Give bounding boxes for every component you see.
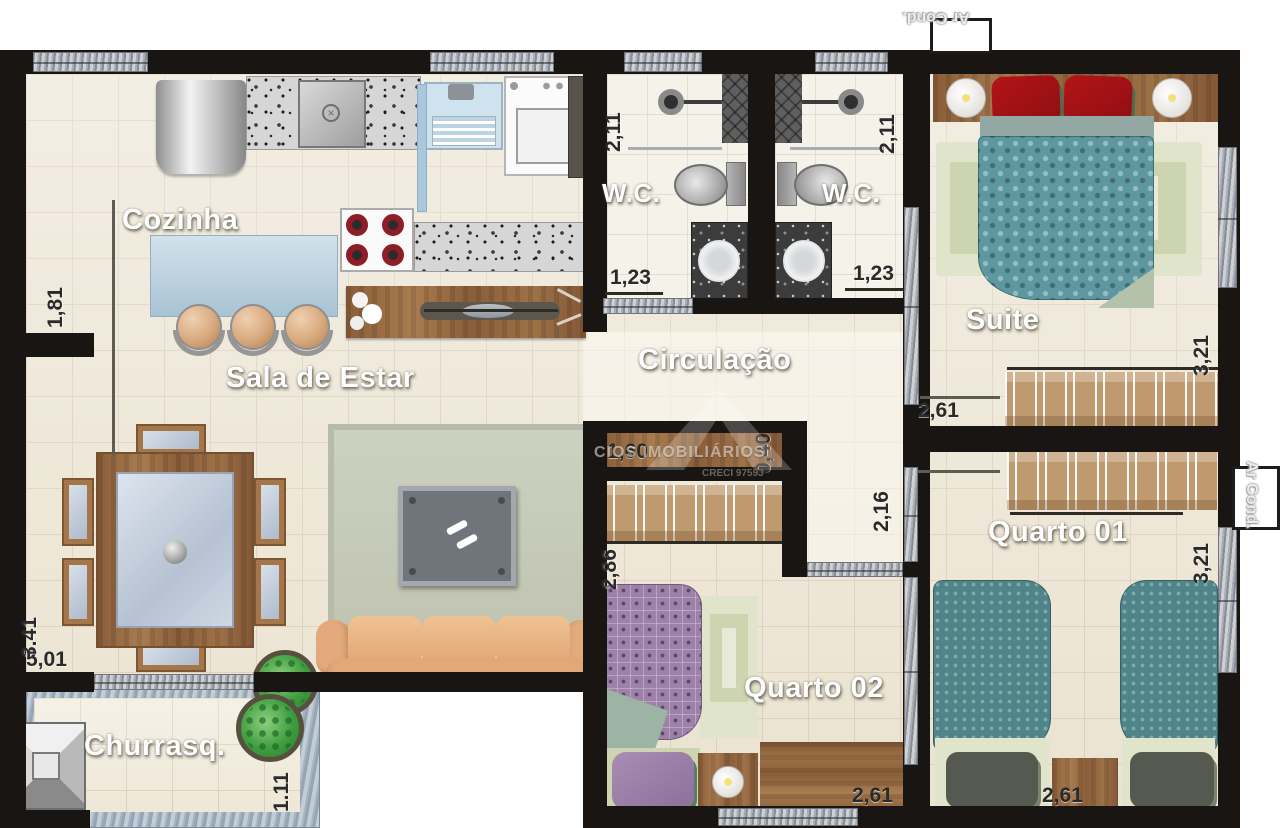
ac-label-right: Ar Cond. xyxy=(1242,430,1260,560)
shower-panel xyxy=(775,74,802,143)
sideboard-plate xyxy=(350,316,364,330)
suite-closet xyxy=(1005,372,1218,426)
tv-screw xyxy=(498,497,505,504)
dim-suite-depth: 3,21 xyxy=(1190,320,1214,376)
wall xyxy=(0,50,1240,74)
room-label-quarto02: Quarto 02 xyxy=(744,672,884,705)
room-label-wc-left: W.C. xyxy=(602,178,660,209)
closet-dimension-line xyxy=(1007,367,1218,370)
single-bed-blanket xyxy=(933,580,1051,752)
single-bed-pillow xyxy=(946,752,1038,808)
quarto02-closet xyxy=(605,485,782,541)
room-label-cozinha: Cozinha xyxy=(122,204,238,237)
fridge xyxy=(156,80,246,174)
window xyxy=(1218,147,1237,288)
dimension-ref-line xyxy=(845,288,903,291)
dim-quarto01-depth: 3,21 xyxy=(1190,512,1214,584)
shower-panel xyxy=(722,74,748,143)
dimension-ref-line xyxy=(605,292,663,295)
window xyxy=(624,52,702,72)
dimension-ref-line xyxy=(112,200,115,455)
wall xyxy=(0,50,26,810)
plant xyxy=(236,694,304,762)
suite-lamp xyxy=(1152,78,1192,118)
floor-plan: × xyxy=(0,0,1280,828)
prep-sink-faucet xyxy=(448,84,474,100)
wc-sink xyxy=(698,240,740,282)
suite-bed-duvet xyxy=(978,136,1154,300)
closet-dimension-line xyxy=(1010,512,1183,515)
dim-wc-left-depth: 2,11 xyxy=(602,98,626,152)
wall xyxy=(903,426,1240,452)
tv-screw xyxy=(409,568,416,575)
oven-knob-left xyxy=(510,82,518,90)
prep-sink-drainboard xyxy=(432,116,496,146)
window xyxy=(33,52,148,72)
room-label-quarto01: Quarto 01 xyxy=(988,516,1128,549)
sideboard-rod xyxy=(424,309,558,312)
wall xyxy=(583,421,607,828)
dim-churrasqueira-width: 1.11 xyxy=(270,758,294,812)
watermark-creci: CRECI 9759J xyxy=(702,468,764,479)
oven-door xyxy=(516,108,572,164)
wall xyxy=(254,672,607,692)
wall xyxy=(26,672,94,692)
dim-quarto01-width: 2,61 xyxy=(1042,784,1083,808)
room-label-suite: Suite xyxy=(966,304,1039,337)
exterior-area xyxy=(320,692,592,828)
door-opening xyxy=(904,467,918,562)
room-label-circulacao: Circulação xyxy=(638,344,791,377)
tv-screw xyxy=(498,568,505,575)
single-bed-pillow xyxy=(1130,752,1214,808)
dim-wc-right-depth: 2,11 xyxy=(876,100,900,154)
dim-cozinha-left: 1,81 xyxy=(44,252,68,328)
door-opening xyxy=(807,562,903,577)
toilet-bowl xyxy=(674,164,728,206)
room-label-sala: Sala de Estar xyxy=(226,362,415,395)
burner xyxy=(346,244,368,266)
window xyxy=(718,808,858,826)
quarto01-closet xyxy=(1007,452,1217,510)
shower-head xyxy=(658,89,684,115)
dim-quarto02-width: 2,61 xyxy=(852,784,893,808)
room-label-churrasqueira: Churrasq. xyxy=(84,730,225,763)
shower-arm xyxy=(682,100,722,104)
dim-quarto02-depth: 2,86 xyxy=(598,538,622,590)
window xyxy=(430,52,554,72)
quarto02-pouf xyxy=(612,752,694,810)
watermark-brand: CIOS IMOBILIÁRIOS xyxy=(594,444,804,462)
door-opening xyxy=(904,207,919,405)
quarto02-rug-bar xyxy=(722,628,736,688)
dining-chair xyxy=(254,478,286,546)
quarto02-lamp xyxy=(712,766,744,798)
wc-sink xyxy=(783,240,825,282)
wall xyxy=(748,50,775,313)
shower-glass-line xyxy=(628,147,722,150)
toilet-tank xyxy=(726,162,746,206)
shower-arm xyxy=(802,100,842,104)
wall xyxy=(0,810,90,828)
window xyxy=(1218,527,1237,673)
dining-chair xyxy=(62,558,94,626)
dim-suite-width: 2,61 xyxy=(918,399,959,423)
window xyxy=(815,52,888,72)
single-bed-blanket xyxy=(1120,580,1218,752)
door-opening xyxy=(904,577,918,765)
burner xyxy=(346,214,368,236)
suite-lamp xyxy=(946,78,986,118)
dining-chair xyxy=(254,558,286,626)
dining-chair xyxy=(62,478,94,546)
closet-dimension-line xyxy=(605,541,782,544)
tv-screw xyxy=(409,497,416,504)
burner xyxy=(382,244,404,266)
dim-hall-depth: 2,16 xyxy=(870,474,894,532)
sideboard-plate xyxy=(362,304,382,324)
window xyxy=(94,674,254,690)
dim-wc-right-width: 1,23 xyxy=(853,262,894,286)
kitchen-counter-side xyxy=(414,222,586,272)
dim-wc-left-width: 1,23 xyxy=(610,266,651,290)
wall xyxy=(592,806,1240,828)
wall xyxy=(26,333,94,357)
kitchen-sink-drain-icon: × xyxy=(322,104,340,122)
kitchen-panel xyxy=(417,84,427,212)
shower-head xyxy=(838,89,864,115)
shower-glass-line xyxy=(790,147,884,150)
dim-sala-width: 5,01 xyxy=(26,648,67,672)
burner xyxy=(382,214,404,236)
grill-center xyxy=(32,752,60,780)
wall xyxy=(693,298,903,314)
dimension-ref-line xyxy=(918,470,1000,473)
ac-label-top: Ar Cond. xyxy=(876,8,996,26)
dining-table-centerpiece xyxy=(163,540,187,564)
door-opening xyxy=(603,298,693,314)
room-label-wc-right: W.C. xyxy=(822,178,880,209)
